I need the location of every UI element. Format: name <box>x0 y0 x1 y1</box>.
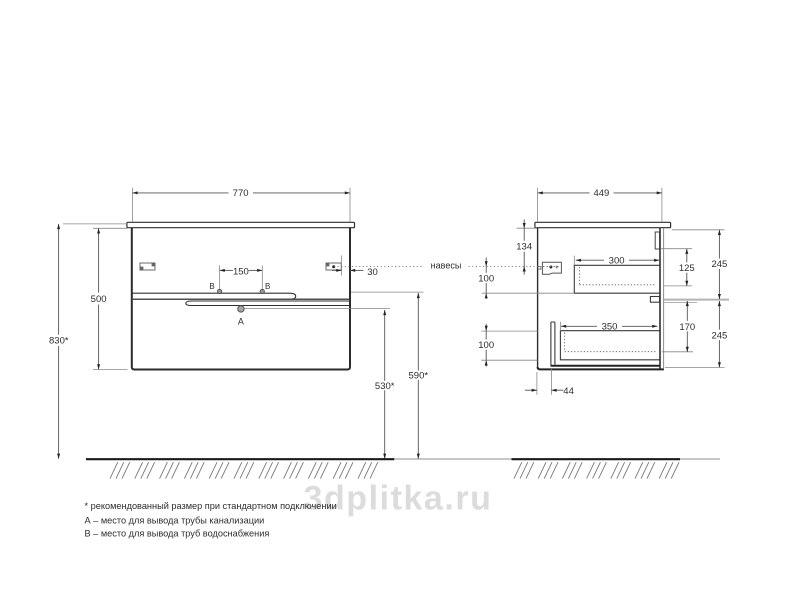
svg-text:245: 245 <box>711 259 727 270</box>
svg-text:В – место для вывода труб водо: В – место для вывода труб водоснабжения <box>85 528 270 538</box>
svg-text:449: 449 <box>593 188 609 199</box>
svg-text:100: 100 <box>478 273 494 284</box>
svg-text:830*: 830* <box>49 335 69 346</box>
svg-text:44: 44 <box>563 386 574 397</box>
svg-text:30: 30 <box>367 267 378 278</box>
svg-text:* рекомендованный размер при с: * рекомендованный размер при стандартном… <box>85 501 337 511</box>
svg-text:500: 500 <box>91 294 107 305</box>
svg-text:В: В <box>209 282 214 291</box>
svg-text:В: В <box>265 282 270 291</box>
svg-text:134: 134 <box>516 241 532 252</box>
svg-text:навесы: навесы <box>431 261 462 271</box>
svg-text:300: 300 <box>609 256 625 267</box>
svg-text:170: 170 <box>679 322 695 333</box>
svg-text:3dplitka.ru: 3dplitka.ru <box>304 480 493 518</box>
svg-text:А – место для вывода трубы кан: А – место для вывода трубы канализации <box>85 515 265 525</box>
svg-text:530*: 530* <box>375 381 395 392</box>
svg-text:150: 150 <box>233 266 249 277</box>
svg-text:590*: 590* <box>409 370 429 381</box>
svg-text:100: 100 <box>478 340 494 351</box>
svg-text:770: 770 <box>233 188 249 199</box>
svg-text:125: 125 <box>679 263 695 274</box>
svg-text:350: 350 <box>602 322 618 333</box>
svg-text:А: А <box>238 317 244 327</box>
svg-text:245: 245 <box>711 330 727 341</box>
